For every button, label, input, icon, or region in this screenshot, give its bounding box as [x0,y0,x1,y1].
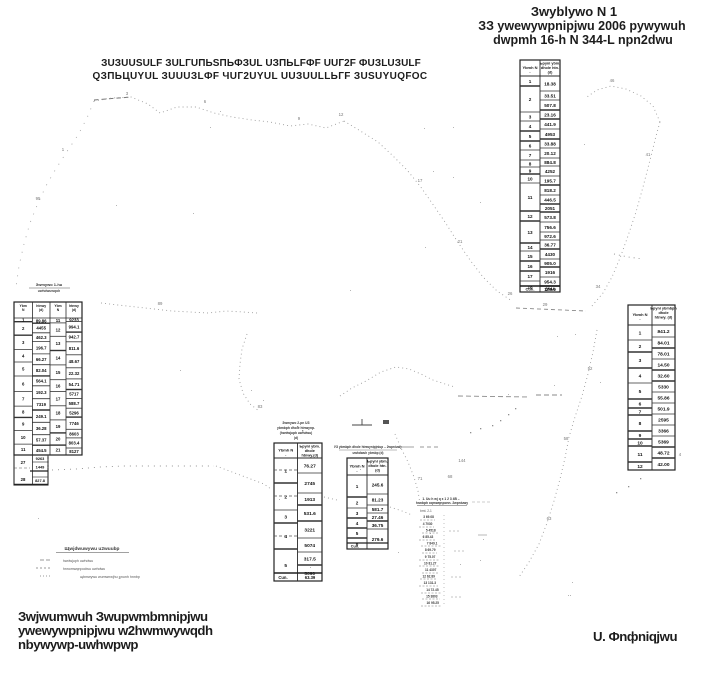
svg-text:48.67: 48.67 [69,359,80,364]
svg-text:2: 2 [639,344,642,350]
svg-text:Cun.: Cun. [526,287,535,292]
svg-text:11: 11 [21,447,26,452]
svg-text:5: 5 [529,134,532,139]
svg-text:818.2: 818.2 [544,188,556,193]
svg-text:Ybmh N: Ybmh N [278,447,293,452]
svg-text:10: 10 [637,440,643,446]
svg-text:16 95.25: 16 95.25 [427,601,440,605]
svg-text:20: 20 [56,437,61,442]
svg-text:5: 5 [639,389,642,395]
svg-text:17: 17 [527,274,533,279]
svg-text:196.7: 196.7 [36,345,47,350]
svg-text:89: 89 [158,301,163,306]
svg-text:Ybmh N: Ybmh N [349,463,364,468]
svg-text:21: 21 [458,239,463,244]
svg-text:9233: 9233 [69,317,79,322]
svg-text:564.1: 564.1 [36,379,47,384]
svg-text:89.86: 89.86 [36,318,47,323]
svg-text:48.72: 48.72 [657,450,669,456]
svg-text:1449: 1449 [36,465,45,470]
svg-text:10: 10 [527,176,533,181]
svg-text:21: 21 [56,448,61,453]
svg-text:dwpmh 16-h N 344-L npn2dwu: dwpmh 16-h N 344-L npn2dwu [493,33,673,47]
svg-text:811.6: 811.6 [69,346,80,351]
svg-text:4: 4 [639,373,642,379]
svg-text:588.7: 588.7 [69,401,80,406]
svg-text:42.00: 42.00 [657,462,669,468]
svg-text:17: 17 [56,396,61,401]
svg-text:УЗ ybmbph dhole htnwynipjniup: УЗ ybmbph dhole htnwynipjniup – 2wpniuwy [334,445,402,449]
svg-text:581.7: 581.7 [372,507,384,512]
svg-text:dhole: dhole [305,449,315,453]
svg-text:U. Фnфniqjwu: U. Фnфniqjwu [593,629,677,644]
svg-text:531.6: 531.6 [304,511,316,517]
svg-text:13: 13 [56,341,61,346]
svg-text:33.51: 33.51 [544,93,556,98]
svg-text:279.6: 279.6 [372,537,384,542]
svg-text:bmt. 2-1: bmt. 2-1 [420,509,432,513]
svg-text:245.6: 245.6 [372,482,384,487]
svg-text:1: 1 [356,484,359,489]
svg-text:15: 15 [527,254,533,259]
svg-text:36.77: 36.77 [544,242,556,247]
svg-text:4: 4 [529,124,532,129]
svg-text:52: 52 [588,366,593,371]
svg-text:756.6: 756.6 [544,225,556,230]
svg-text:81.23: 81.23 [372,497,384,502]
svg-text:3: 3 [529,114,532,119]
svg-text:15 3803: 15 3803 [426,594,438,598]
svg-text:Ybmh N: Ybmh N [522,65,537,70]
svg-text:11: 11 [528,195,533,200]
svg-text:4953: 4953 [545,132,556,137]
svg-text:317.5: 317.5 [304,556,316,562]
svg-text:501.9: 501.9 [657,406,669,412]
svg-text:7: 7 [639,409,642,415]
svg-text:щbmwywu wumwnwjhu քnunh hnnbp: щbmwywu wumwnwjhu քnunh hnnbp [80,575,140,579]
svg-text:57.37: 57.37 [36,438,47,443]
svg-text:12: 12 [637,464,643,470]
svg-text:192.3: 192.3 [36,390,47,395]
svg-text:33.88: 33.88 [544,141,556,146]
svg-text:Зwyblywo N 1: Зwyblywo N 1 [531,4,617,19]
svg-text:2: 2 [284,494,287,500]
svg-text:5296: 5296 [69,410,79,415]
svg-text:7 849.1: 7 849.1 [427,542,438,546]
svg-text:Ybmh N: Ybmh N [632,312,647,317]
svg-text:5: 5 [284,563,287,569]
svg-text:8127: 8127 [69,449,79,454]
svg-text:46: 46 [610,78,615,83]
svg-text:10: 10 [21,435,26,440]
svg-text:27: 27 [21,460,26,465]
svg-text:htnwy. (d): htnwy. (d) [655,316,673,320]
svg-text:14: 14 [527,245,533,250]
svg-text:Зwmywo 1-hu: Зwmywo 1-hu [36,282,63,287]
svg-text:71: 71 [418,476,423,481]
svg-text:16: 16 [56,383,61,388]
svg-text:4455: 4455 [36,326,46,331]
svg-text:63: 63 [547,516,552,521]
svg-text:68: 68 [448,474,453,479]
svg-text:5717: 5717 [69,392,79,397]
svg-text:Ьpyni ybm.: Ьpyni ybm. [540,61,560,65]
svg-text:12: 12 [527,214,533,219]
svg-text:Зwjwumwuh Зwupwmbmnipjwu: Зwjwumwuh Зwupwmbmnipjwu [18,609,208,624]
svg-text:83: 83 [258,404,263,409]
svg-text:8: 8 [529,161,532,166]
svg-text:195.7: 195.7 [544,178,556,183]
svg-text:9 75.07: 9 75.07 [425,555,436,559]
svg-text:uwhdwuh ybmbp (d): uwhdwuh ybmbp (d) [353,451,384,455]
svg-text:1: 1 [639,330,642,336]
svg-text:4252: 4252 [545,169,556,174]
svg-text:Щwjdwuwywu u2wuubp: Щwjdwuwywu u2wuubp [65,546,120,552]
svg-text:6: 6 [639,401,642,407]
svg-text:507.8: 507.8 [544,103,556,108]
svg-text:ЗUЗUUSULF ЗULГUПЬSПЬФЗUL UЗПЬL: ЗUЗUUSULF ЗULГUПЬSПЬФЗUL UЗПЬLFФF UUГ2F … [101,58,421,69]
svg-text:36.75: 36.75 [372,523,384,528]
svg-text:16: 16 [527,264,533,269]
svg-text:7: 7 [529,153,532,158]
svg-text:63.39: 63.39 [305,575,316,580]
svg-text:11: 11 [637,452,642,458]
svg-text:994.1: 994.1 [69,324,80,329]
svg-text:4430: 4430 [545,252,556,257]
svg-text:2: 2 [356,500,359,505]
svg-text:13 131.3: 13 131.3 [424,581,437,585]
svg-text:249.1: 249.1 [36,414,47,419]
svg-text:441.9: 441.9 [544,122,556,127]
svg-text:Cun.: Cun. [351,545,359,549]
svg-text:7746: 7746 [69,421,79,426]
svg-text:9: 9 [639,433,642,439]
svg-text:3: 3 [284,514,287,520]
svg-text:2051: 2051 [545,206,556,211]
svg-text:82.04: 82.04 [36,368,47,373]
svg-text:5330: 5330 [658,384,669,390]
svg-text:18.38: 18.38 [544,81,556,86]
svg-text:(d): (d) [548,71,554,75]
svg-text:66.27: 66.27 [36,357,47,362]
svg-text:12: 12 [339,112,344,117]
svg-text:1913: 1913 [304,497,315,503]
svg-text:22.32: 22.32 [69,371,80,376]
svg-text:13: 13 [527,230,533,235]
svg-text:15: 15 [56,370,61,375]
svg-text:23.16: 23.16 [544,112,556,117]
svg-text:5 4518: 5 4518 [426,528,436,532]
svg-text:827.8: 827.8 [35,478,46,483]
svg-text:905.0: 905.0 [544,261,556,266]
svg-text:3221: 3221 [304,527,315,533]
svg-text:1: 1 [529,79,532,84]
svg-text:Ьpyni ybm.: Ьpyni ybm. [300,444,320,448]
svg-text:uwhdwuwqoh: uwhdwuwqoh [38,289,60,293]
svg-text:(d): (d) [72,308,76,312]
svg-text:dhole: dhole [658,311,668,315]
svg-text:144: 144 [458,458,466,463]
svg-text:7319: 7319 [36,402,46,407]
svg-text:55.86: 55.86 [657,395,669,401]
svg-text:17: 17 [418,178,423,183]
svg-text:4: 4 [356,521,359,526]
svg-text:htnwy.(d): htnwy.(d) [301,454,318,458]
svg-text:12 62.89: 12 62.89 [422,575,435,579]
svg-text:hwdwjuph uwhdwu: hwdwjuph uwhdwu [63,559,93,563]
svg-text:29: 29 [543,302,548,307]
svg-text:884.8: 884.8 [544,160,556,165]
svg-text:(d): (d) [375,469,381,473]
svg-text:3366: 3366 [658,428,669,434]
svg-text:9263: 9263 [36,456,45,461]
svg-text:ywewywpnipjwu w2hwmwywqdh: ywewywpnipjwu w2hwmwywqdh [18,623,213,638]
svg-text:26: 26 [508,291,513,296]
svg-text:3: 3 [639,358,642,364]
svg-text:3 69.08: 3 69.08 [423,515,434,519]
svg-text:3: 3 [356,511,359,516]
svg-text:5369: 5369 [658,439,669,445]
svg-text:Ьpyni ybmbph: Ьpyni ybmbph [650,306,677,310]
svg-text:78.01: 78.01 [657,351,669,357]
svg-text:ЗЗ ywewywpnipjwu 2006 pywywuh: ЗЗ ywewywpnipjwu 2006 pywywuh [478,19,685,33]
svg-text:2: 2 [529,97,532,102]
svg-text:4: 4 [284,534,287,540]
svg-text:27.46: 27.46 [372,515,384,520]
svg-text:446.5: 446.5 [544,197,556,202]
svg-text:hnnomwqnpodwu uwhdwu: hnnomwqnpodwu uwhdwu [63,567,105,571]
svg-text:14 72.45: 14 72.45 [426,588,439,592]
svg-text:14: 14 [56,355,61,360]
svg-text:2745: 2745 [304,481,315,487]
svg-text:18: 18 [56,411,61,416]
svg-text:11 4307: 11 4307 [425,568,437,572]
svg-text:19: 19 [56,424,61,429]
svg-text:5074: 5074 [304,543,315,549]
svg-text:58: 58 [564,436,569,441]
svg-text:972.6: 972.6 [544,234,556,239]
svg-text:(d): (d) [39,308,43,312]
svg-text:454.5: 454.5 [36,448,47,453]
svg-text:462.3: 462.3 [36,335,47,340]
svg-text:84.01: 84.01 [657,340,669,346]
svg-text:4 7030: 4 7030 [423,522,433,526]
svg-text:dhole htn.: dhole htn. [541,66,559,70]
svg-text:hnnbph oqmwqnponn. 2wpniuwy: hnnbph oqmwqnponn. 2wpniuwy [416,501,468,505]
svg-text:942.7: 942.7 [69,335,80,340]
svg-text:8: 8 [639,421,642,427]
svg-text:8603: 8603 [69,431,79,436]
svg-text:8644: 8644 [545,287,555,292]
svg-text:32.60: 32.60 [657,373,669,379]
svg-text:Cun.: Cun. [278,575,287,580]
svg-text:QЗПЬЦUYUL ЗUUUЗLФF ЧUГ2UYUL UU: QЗПЬЦUYUL ЗUUUЗLФF ЧUГ2UYUL UUЗUULLЬГF З… [93,71,428,82]
svg-text:6 85.43: 6 85.43 [423,535,434,539]
svg-text:8 69.79: 8 69.79 [425,548,436,552]
svg-text:34: 34 [596,284,601,289]
svg-text:11: 11 [56,318,61,323]
svg-text:10 81.27: 10 81.27 [424,561,437,565]
svg-text:14.50: 14.50 [657,362,669,368]
svg-text:20.12: 20.12 [544,151,556,156]
svg-text:573.8: 573.8 [544,215,556,220]
svg-text:54.71: 54.71 [69,382,80,387]
svg-text:dhole htn.: dhole htn. [368,464,386,468]
svg-text:941.2: 941.2 [657,329,669,335]
svg-text:2595: 2595 [658,417,669,423]
svg-text:(d): (d) [294,436,298,440]
svg-text:9: 9 [529,168,532,173]
svg-text:1: 1 [284,468,287,474]
svg-text:12: 12 [56,327,61,332]
svg-text:954.3: 954.3 [544,279,556,284]
svg-text:Ьpyni ybm.: Ьpyni ybm. [367,459,387,463]
svg-text:6: 6 [529,143,532,148]
svg-text:36.28: 36.28 [36,426,47,431]
svg-text:1916: 1916 [545,270,556,275]
svg-text:95: 95 [36,196,41,201]
svg-text:76.27: 76.27 [304,463,316,469]
svg-text:ybmbph dhole htnwynp.: ybmbph dhole htnwynp. [277,426,315,430]
svg-text:5: 5 [356,531,359,536]
svg-text:Зwmywo 2-pn UЗ: Зwmywo 2-pn UЗ [282,421,309,425]
svg-text:28: 28 [21,477,26,482]
svg-text:41: 41 [646,152,651,157]
svg-text:nbywywp-uwhwpwp: nbywywp-uwhwpwp [18,637,138,652]
svg-text:803.4: 803.4 [69,441,80,446]
